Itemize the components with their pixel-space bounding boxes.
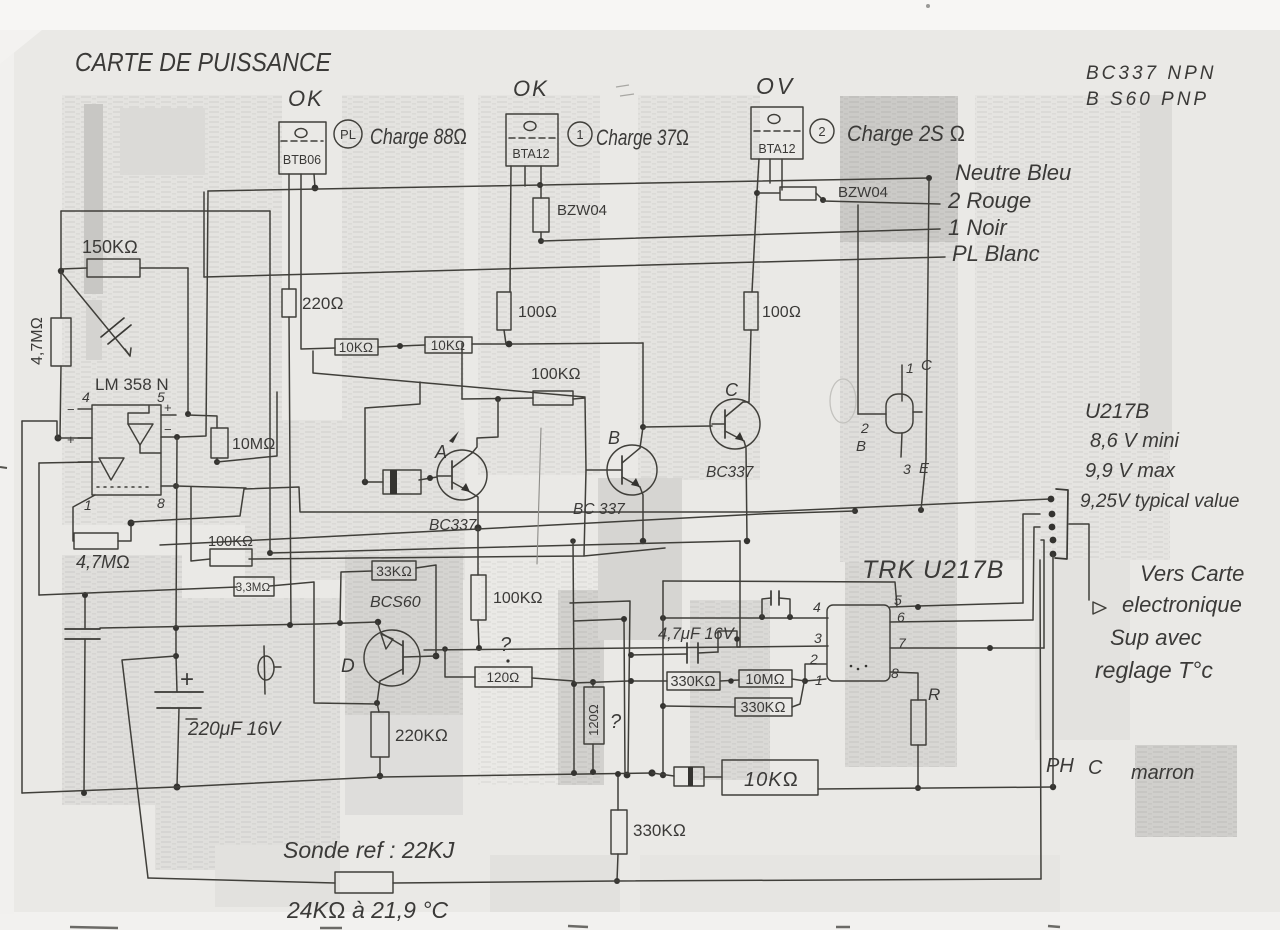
svg-text:100Ω: 100Ω — [762, 304, 801, 321]
svg-text:electronique: electronique — [1122, 592, 1242, 617]
svg-text:−: − — [67, 402, 75, 417]
svg-text:4: 4 — [813, 599, 821, 615]
svg-text:3: 3 — [903, 461, 911, 477]
svg-text:1: 1 — [815, 672, 823, 688]
svg-text:1: 1 — [906, 360, 914, 376]
svg-text:2: 2 — [860, 420, 869, 436]
svg-text:100KΩ: 100KΩ — [531, 366, 581, 383]
svg-text:OK: OK — [288, 86, 324, 111]
svg-text:CARTE DE PUISSANCE: CARTE DE PUISSANCE — [75, 47, 332, 77]
svg-text:5: 5 — [894, 592, 902, 608]
svg-text:9,25V typical value: 9,25V typical value — [1080, 491, 1240, 512]
svg-text:BC337 NPN: BC337 NPN — [1086, 63, 1217, 84]
svg-text:9,9 V max: 9,9 V max — [1085, 460, 1176, 482]
svg-text:TRK U217B: TRK U217B — [862, 556, 1004, 584]
svg-text:Neutre Bleu: Neutre Bleu — [955, 160, 1071, 185]
svg-text:B S60 PNP: B S60 PNP — [1086, 89, 1209, 110]
svg-text:120Ω: 120Ω — [487, 670, 520, 685]
svg-text:BTA12: BTA12 — [758, 142, 795, 156]
svg-text:4,7MΩ: 4,7MΩ — [29, 317, 46, 365]
svg-text:330KΩ: 330KΩ — [670, 674, 715, 690]
svg-text:BTB06: BTB06 — [283, 153, 321, 167]
svg-text:E: E — [919, 460, 930, 477]
svg-text:3,3MΩ: 3,3MΩ — [236, 582, 271, 594]
svg-text:Charge 37Ω: Charge 37Ω — [596, 125, 689, 150]
svg-text:Sup avec: Sup avec — [1110, 625, 1202, 650]
svg-text:10KΩ: 10KΩ — [339, 340, 373, 355]
svg-text:330KΩ: 330KΩ — [740, 700, 785, 716]
svg-text:PL Blanc: PL Blanc — [952, 241, 1040, 266]
svg-text:?: ? — [500, 634, 512, 656]
svg-text:C: C — [1088, 757, 1103, 779]
svg-text:7: 7 — [898, 635, 907, 651]
svg-text:PH: PH — [1046, 755, 1074, 777]
svg-text:330KΩ: 330KΩ — [633, 821, 686, 840]
svg-text:10MΩ: 10MΩ — [745, 672, 784, 688]
svg-text:PL: PL — [340, 127, 356, 142]
svg-text:3: 3 — [814, 630, 822, 646]
svg-text:220μF 16V: 220μF 16V — [187, 719, 283, 740]
svg-text:Sonde ref : 22KJ: Sonde ref : 22KJ — [283, 837, 455, 863]
svg-text:2: 2 — [809, 651, 818, 667]
svg-text:10KΩ: 10KΩ — [744, 769, 799, 791]
svg-text:R: R — [928, 685, 940, 704]
svg-text:2 Rouge: 2 Rouge — [947, 188, 1031, 213]
svg-text:−: − — [67, 455, 75, 470]
svg-text:BZW04: BZW04 — [557, 202, 607, 219]
svg-text:100KΩ: 100KΩ — [493, 590, 543, 607]
svg-text:Charge 88Ω: Charge 88Ω — [370, 124, 467, 149]
svg-text:Charge 2S Ω: Charge 2S Ω — [847, 121, 965, 146]
svg-text:BTA12: BTA12 — [512, 147, 549, 161]
svg-text:marron: marron — [1131, 762, 1194, 784]
svg-text:BC337: BC337 — [706, 464, 755, 481]
svg-text:BC337: BC337 — [429, 517, 478, 534]
svg-text:6: 6 — [897, 609, 905, 625]
svg-text:150KΩ: 150KΩ — [82, 237, 138, 257]
svg-text:U217B: U217B — [1085, 400, 1149, 423]
svg-text:1: 1 — [84, 497, 92, 513]
svg-text:4,7μF 16V: 4,7μF 16V — [658, 625, 736, 643]
svg-text:10MΩ: 10MΩ — [232, 436, 275, 453]
svg-text:33KΩ: 33KΩ — [376, 563, 412, 579]
svg-text:100Ω: 100Ω — [518, 304, 557, 321]
svg-text:100KΩ: 100KΩ — [208, 534, 253, 550]
svg-text:10KΩ: 10KΩ — [431, 338, 465, 353]
svg-text:BCS60: BCS60 — [370, 594, 421, 611]
svg-text:1: 1 — [576, 127, 583, 142]
svg-text:2: 2 — [818, 124, 825, 139]
svg-text:A: A — [434, 442, 447, 462]
svg-text:D: D — [341, 656, 355, 677]
svg-text:BZW04: BZW04 — [838, 184, 888, 201]
svg-text:24KΩ à 21,9 °C: 24KΩ à 21,9 °C — [286, 897, 449, 923]
svg-text:−: − — [164, 422, 172, 437]
svg-text:1 Noir: 1 Noir — [948, 215, 1008, 240]
svg-text:?: ? — [610, 711, 622, 733]
svg-text:+: + — [67, 432, 75, 447]
svg-text:B: B — [608, 428, 620, 448]
svg-text:reglage T°c: reglage T°c — [1095, 657, 1213, 683]
svg-text:4,7MΩ: 4,7MΩ — [76, 552, 130, 572]
svg-text:B: B — [856, 438, 866, 455]
svg-text:OV: OV — [756, 73, 795, 99]
svg-text:8: 8 — [157, 495, 165, 511]
svg-text:120Ω: 120Ω — [586, 704, 601, 736]
svg-text:4: 4 — [82, 389, 90, 405]
svg-text:BC 337: BC 337 — [573, 501, 626, 518]
svg-text:220KΩ: 220KΩ — [395, 726, 448, 745]
svg-text:+: + — [180, 666, 194, 693]
svg-text:C: C — [725, 380, 739, 400]
svg-text:8,6 V mini: 8,6 V mini — [1090, 430, 1179, 452]
svg-text:8: 8 — [891, 665, 899, 681]
svg-text:+: + — [164, 400, 172, 415]
svg-text:OK: OK — [513, 76, 549, 101]
svg-text:C: C — [921, 357, 932, 374]
svg-text:220Ω: 220Ω — [302, 294, 343, 313]
svg-text:Vers Carte: Vers Carte — [1140, 561, 1244, 586]
